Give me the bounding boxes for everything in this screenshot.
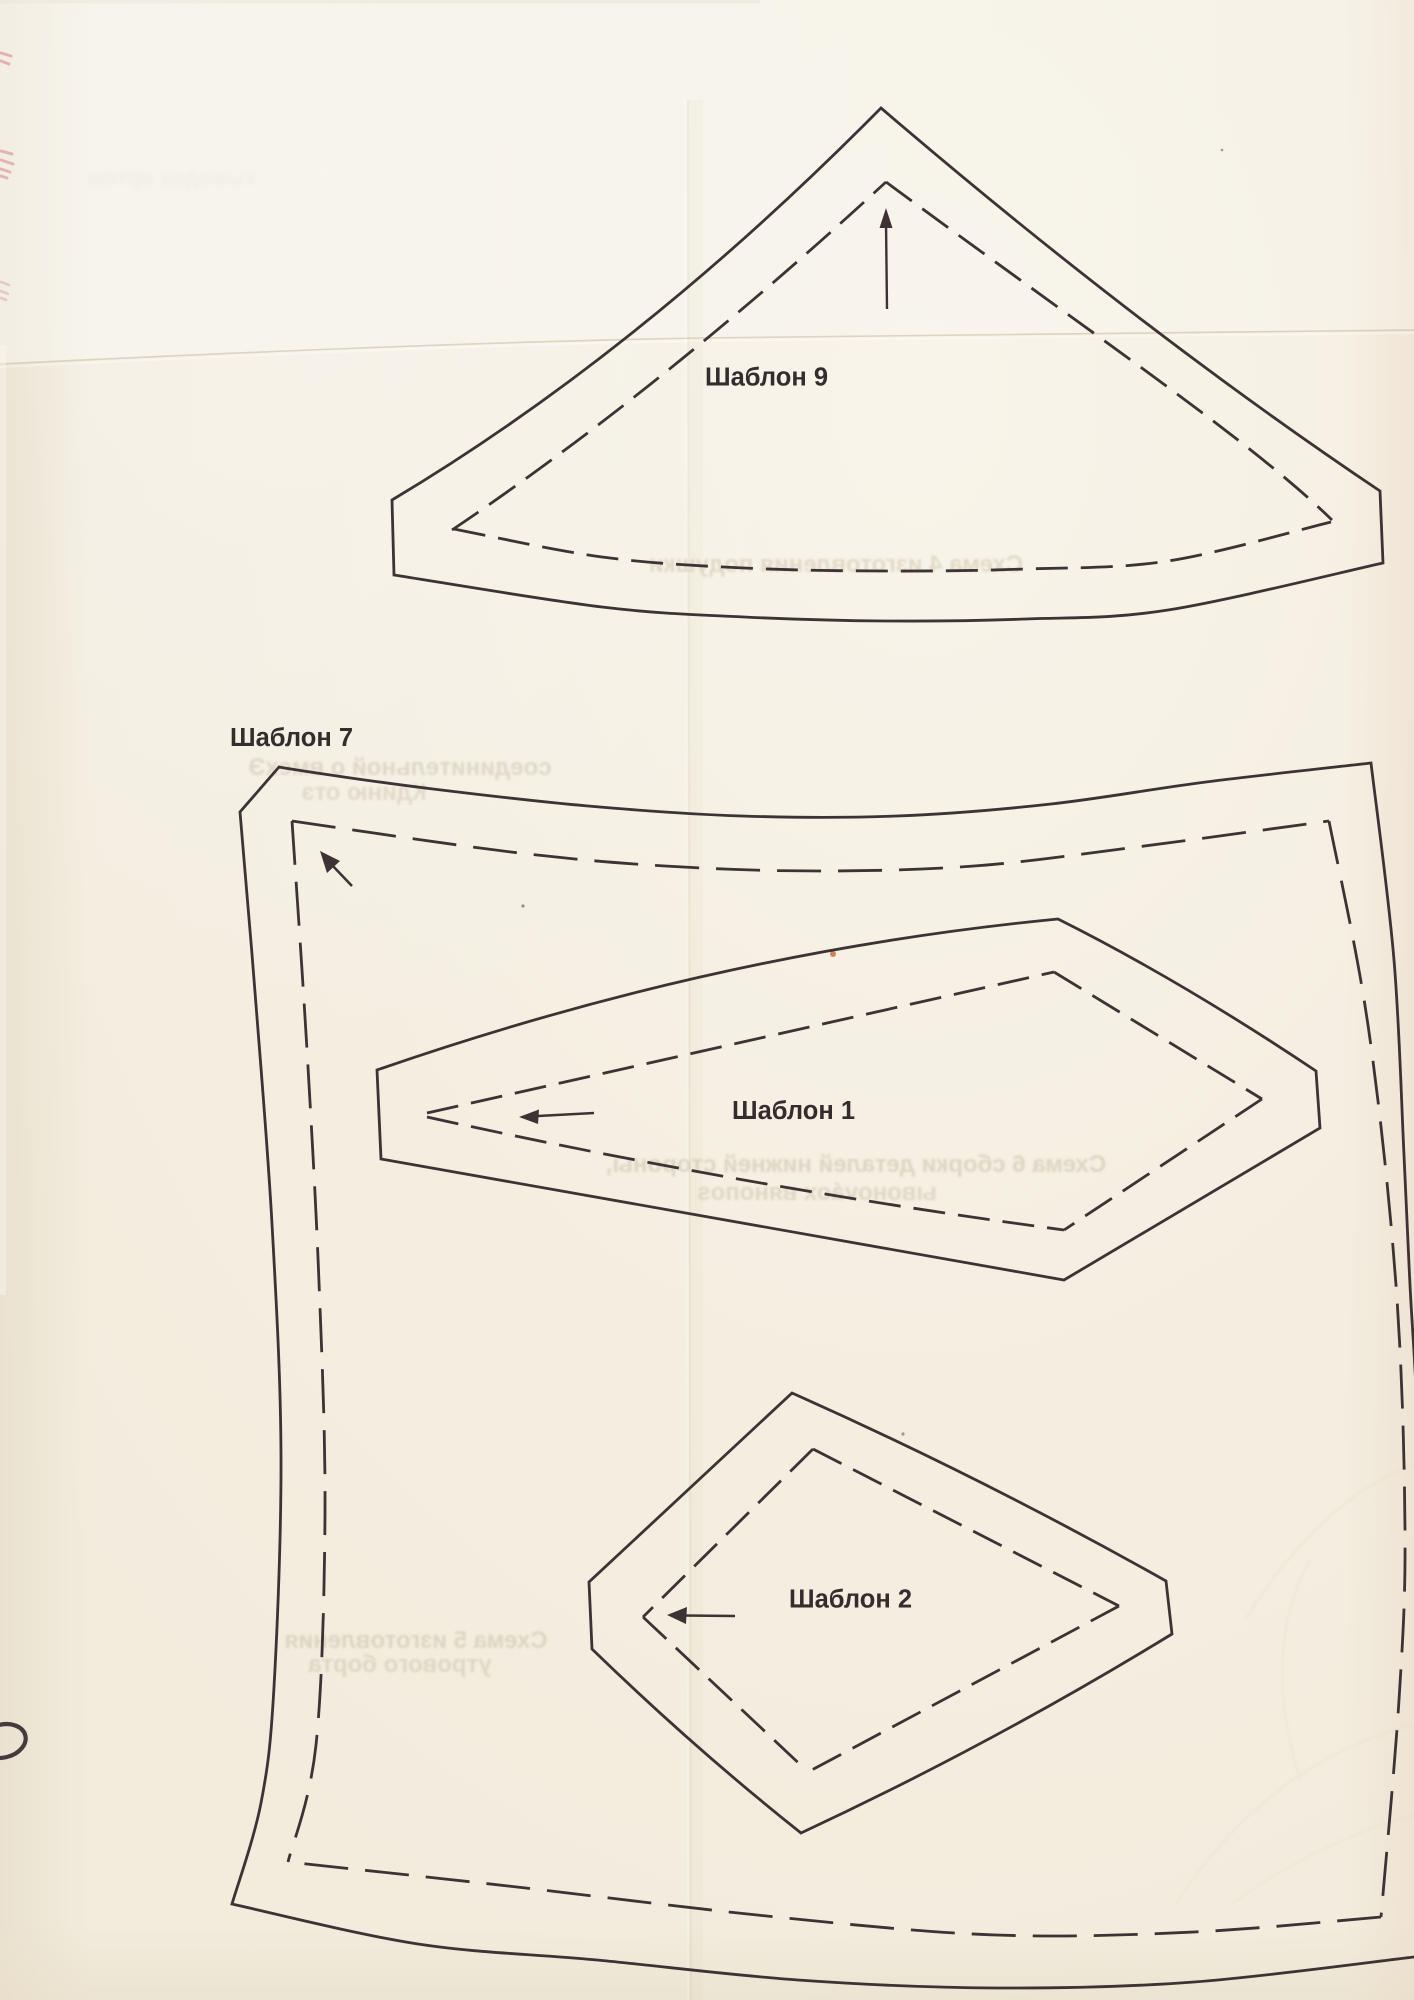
svg-text:Схема 6 сборки деталей нижней: Схема 6 сборки деталей нижней стороны, [606,1151,1106,1178]
svg-text:Шаблон 9: Шаблон 9 [705,364,828,392]
svg-text:Шаблон 1: Шаблон 1 [732,1097,855,1125]
svg-text:Кдиню отэ: Кдиню отэ [301,779,426,806]
svg-text:утрового борта: утрового борта [307,1651,491,1678]
svg-text:ывоноváох вянопos: ывоноváох вянопos [697,1179,937,1206]
svg-text:Шаблон 2: Шаблон 2 [789,1586,912,1614]
svg-text:хыводох иртом: хыводох иртом [87,165,256,190]
svg-text:Шаблон 7: Шаблон 7 [230,724,353,752]
svg-text:Схема 4 изготовления подушки: Схема 4 изготовления подушки [649,551,1023,578]
svg-text:соединительной о вмехЭ: соединительной о вмехЭ [248,754,551,781]
